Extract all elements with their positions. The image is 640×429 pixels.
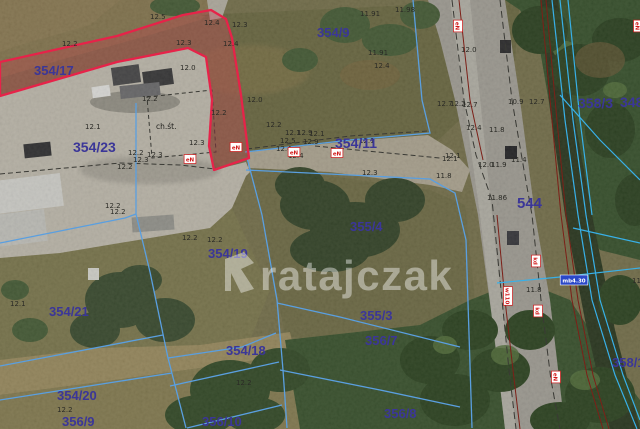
spot-elevation: 12.0 [461,46,477,54]
spot-elevation: 12.2 [207,236,223,244]
spot-elevation: 12.3 [133,156,149,164]
spot-elevation: 12.3 [189,139,205,147]
spot-elevation: 12.1 [445,152,461,160]
spot-elevation: 11.8 [489,126,505,134]
spot-elevation: 12.3 [176,39,192,47]
spot-elevation: 12.2 [236,379,252,387]
utility-badge: eN [288,148,300,157]
parcel-label-356-7: 356/7 [365,333,398,348]
spot-elevation: 12.1 [10,300,26,308]
svg-text:kd: kd [532,257,538,265]
spot-elevation: 12.2 [62,40,78,48]
parcel-label-355-3: 355/3 [360,308,393,323]
spot-elevation: 11.91 [368,49,388,57]
utility-badge: eN [454,20,463,32]
spot-elevation: 12.2 [142,95,158,103]
spot-elevation: 12.3 [232,21,248,29]
watermark: ratajczak [225,252,453,299]
spot-elevation: 11.8 [526,286,542,294]
utility-badge: eN [634,20,640,32]
parcel-label-354-9: 354/9 [317,25,350,40]
spot-elevation: 12.2 [266,121,282,129]
spot-elevation: 12.4 [374,62,390,70]
spot-elevation: 11.1 [632,277,640,285]
spot-elevation: 12.2 [57,406,73,414]
spot-elevation: 12.2 [211,109,227,117]
parcel-label-356-8: 356/8 [384,406,417,421]
utility-badge: kd [534,305,543,317]
svg-text:eN: eN [454,22,460,31]
svg-text:eN: eN [634,22,640,31]
parcel-label-358-3: 358/3 [578,95,613,111]
spot-elevation: 12.0 [247,96,263,104]
parcel-label-544: 544 [517,195,543,212]
parcel-label-356-9: 356/9 [62,414,95,429]
spot-elevation: 11.8 [436,172,452,180]
spot-elevation: 12.1 [85,123,101,131]
watermark-text: ratajczak [260,252,453,299]
parcel-label-354-21: 354/21 [49,304,89,319]
spot-elevation: 12.2 [182,234,198,242]
spot-elevation: 12.4 [223,40,239,48]
parcel-label-358-1: 358/1 [612,355,640,370]
utility-badge: kd [532,255,541,267]
spot-elevation: 12.3 [362,169,378,177]
parcel-label-354-18: 354/18 [226,343,266,358]
parcel-label-348: 348 [620,94,640,110]
spot-elevation: 12.5 [280,137,296,145]
utility-badge: eN [230,143,242,152]
culvert-badge: mb4.30 [560,275,588,285]
spot-elevation: 12.2 [110,208,126,216]
parcel-label-354-20: 354/20 [57,388,97,403]
parcel-label-356-10: 356/10 [202,414,242,429]
building-annotation: ch.śt. [156,122,177,131]
spot-elevation: 12.7 [529,98,545,106]
spot-elevation: 11.86 [487,194,508,202]
parcel-label-354-17: 354/17 [34,63,74,78]
svg-text:eN: eN [333,151,342,157]
spot-elevation: 10.9 [508,98,524,106]
spot-elevation: 12.0 [180,64,196,72]
svg-text:eN: eN [186,157,195,163]
spot-elevation: 12.4 [204,19,220,27]
utility-badge: eN [184,155,196,164]
svg-text:eN: eN [290,150,299,156]
utility-badge: eN [552,371,561,383]
spot-elevation: 11.9 [491,161,507,169]
parcel-label-354-11: 354/11 [335,135,377,151]
utility-badge: w110 [504,287,513,306]
parcel-label-355-4: 355/4 [350,219,383,234]
spot-elevation: 12.2 [117,163,133,171]
cadastral-map[interactable]: 12.212.512.412.312.312.412.012.212.112.2… [0,0,640,429]
svg-text:mb4.30: mb4.30 [562,279,585,285]
spot-elevation: 12.7 [462,101,478,109]
spot-elevation: 12.4 [466,124,482,132]
svg-text:kd: kd [534,307,540,315]
spot-elevation: 12.1 [309,130,325,138]
parcel-label-354-23: 354/23 [73,139,116,155]
svg-text:eN: eN [552,373,558,382]
spot-elevation: 11.91 [360,10,380,18]
spot-elevation: 12.9 [303,138,319,146]
svg-text:eN: eN [232,145,241,151]
spot-elevation: 11.98 [395,6,415,14]
svg-text:w110: w110 [504,288,510,305]
spot-elevation: 12.3 [147,151,163,159]
spot-elevation: 11.4 [511,156,527,164]
spot-elevation: 12.5 [150,13,166,21]
